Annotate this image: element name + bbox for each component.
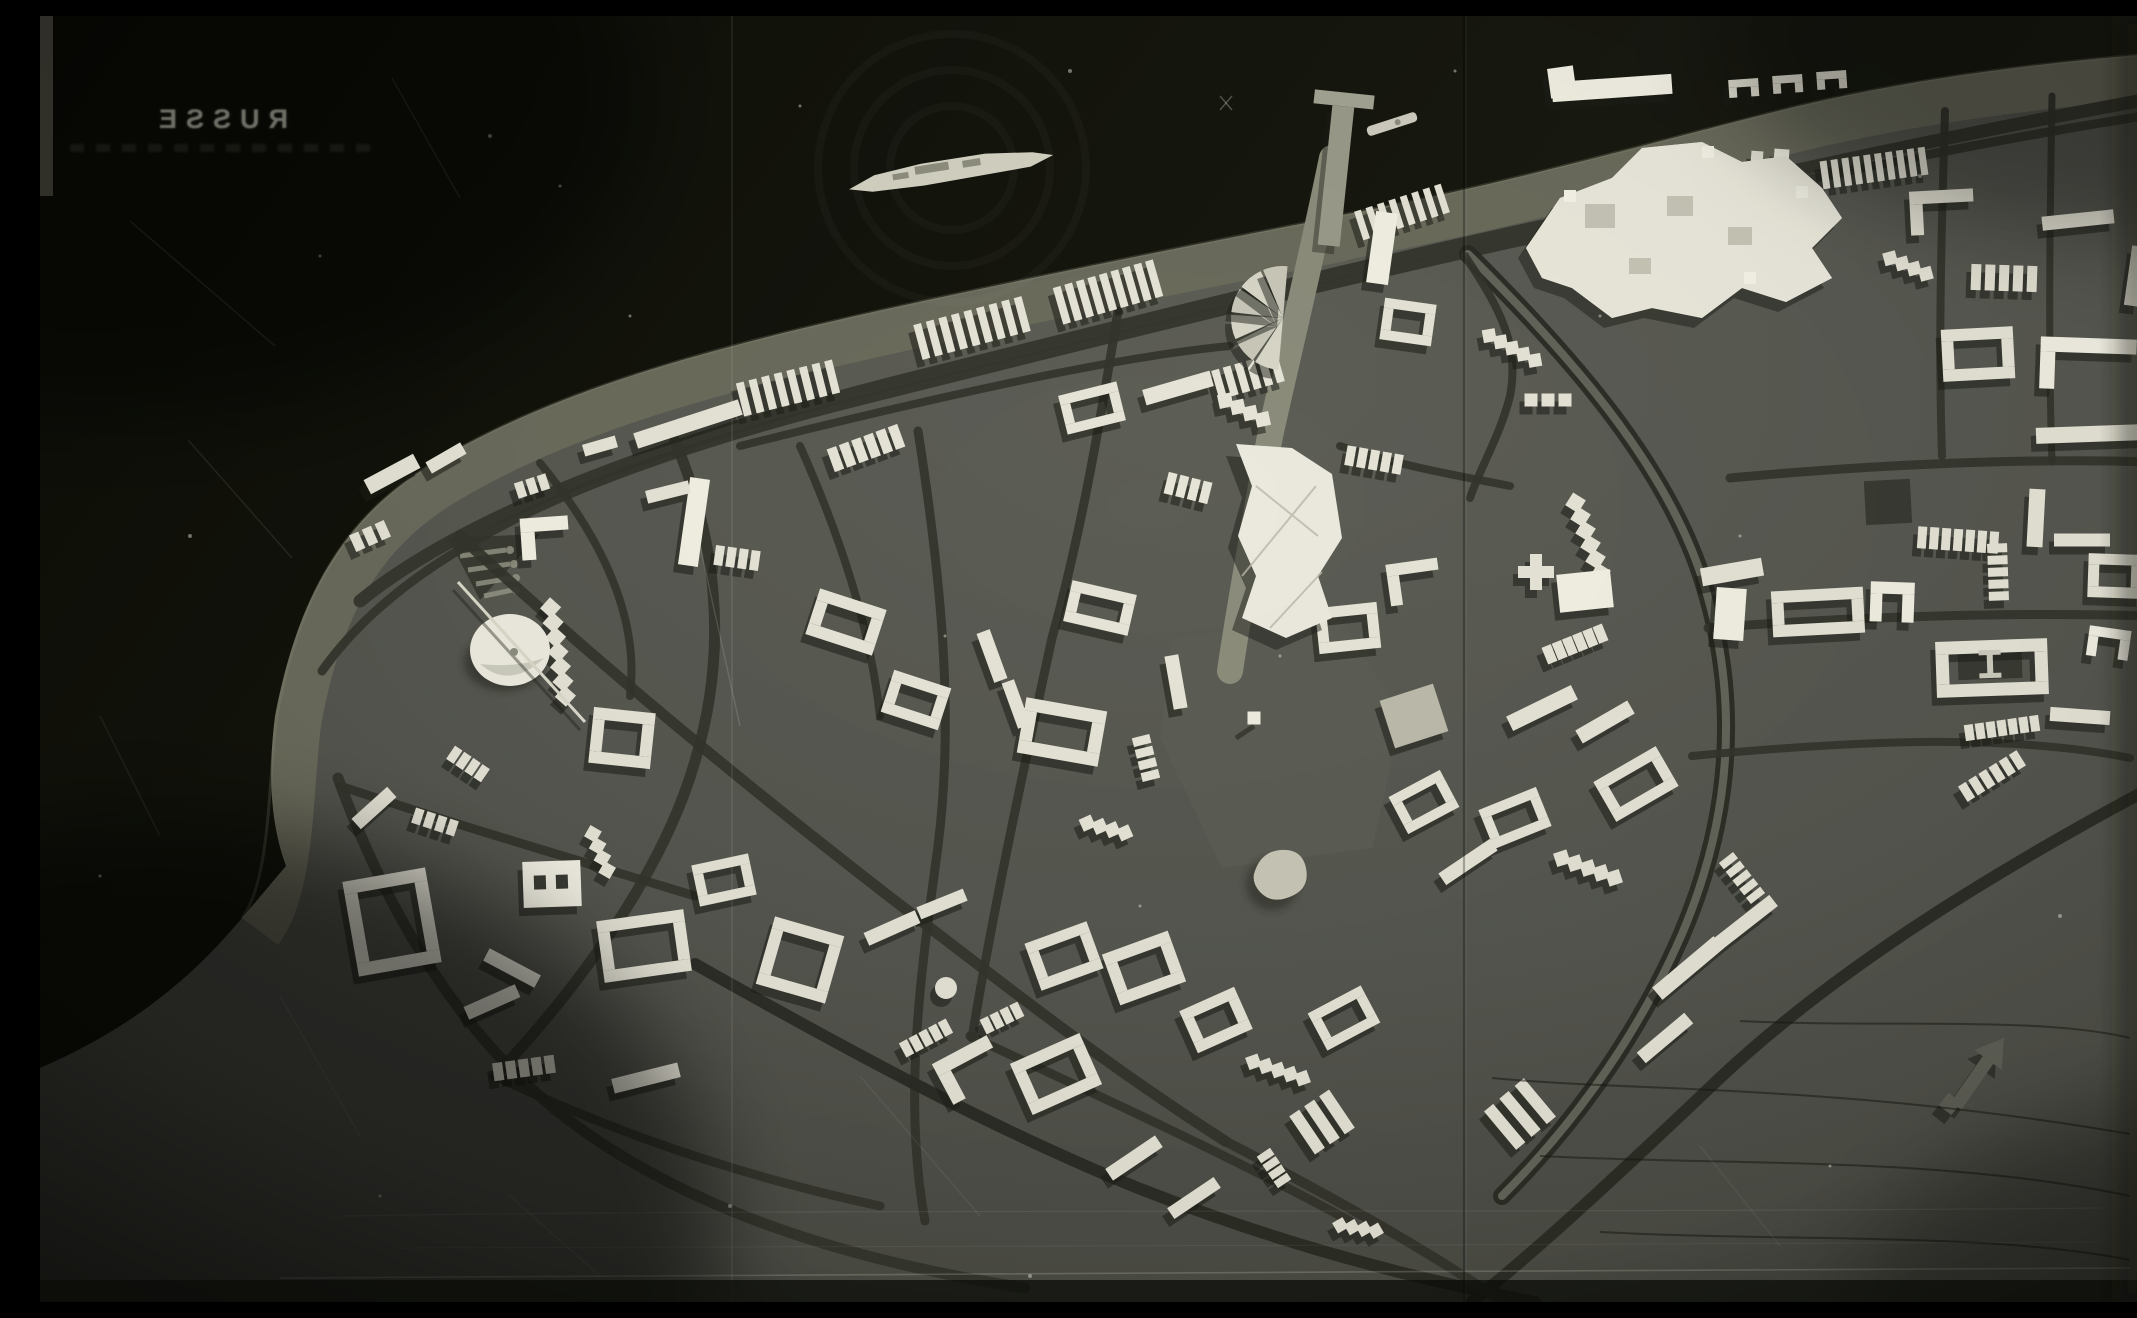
bottom-edge: [40, 1280, 2137, 1302]
right-photo-edge: [2120, 16, 2137, 1302]
city-model-scene: [40, 16, 2137, 1302]
stamp-text: RUSSE: [58, 104, 288, 135]
left-paper-edge: [40, 16, 53, 196]
stamp-marks-illegible: [70, 144, 370, 152]
archival-photo-city-model: RUSSE: [40, 16, 2137, 1302]
vignette: [40, 16, 2137, 1302]
